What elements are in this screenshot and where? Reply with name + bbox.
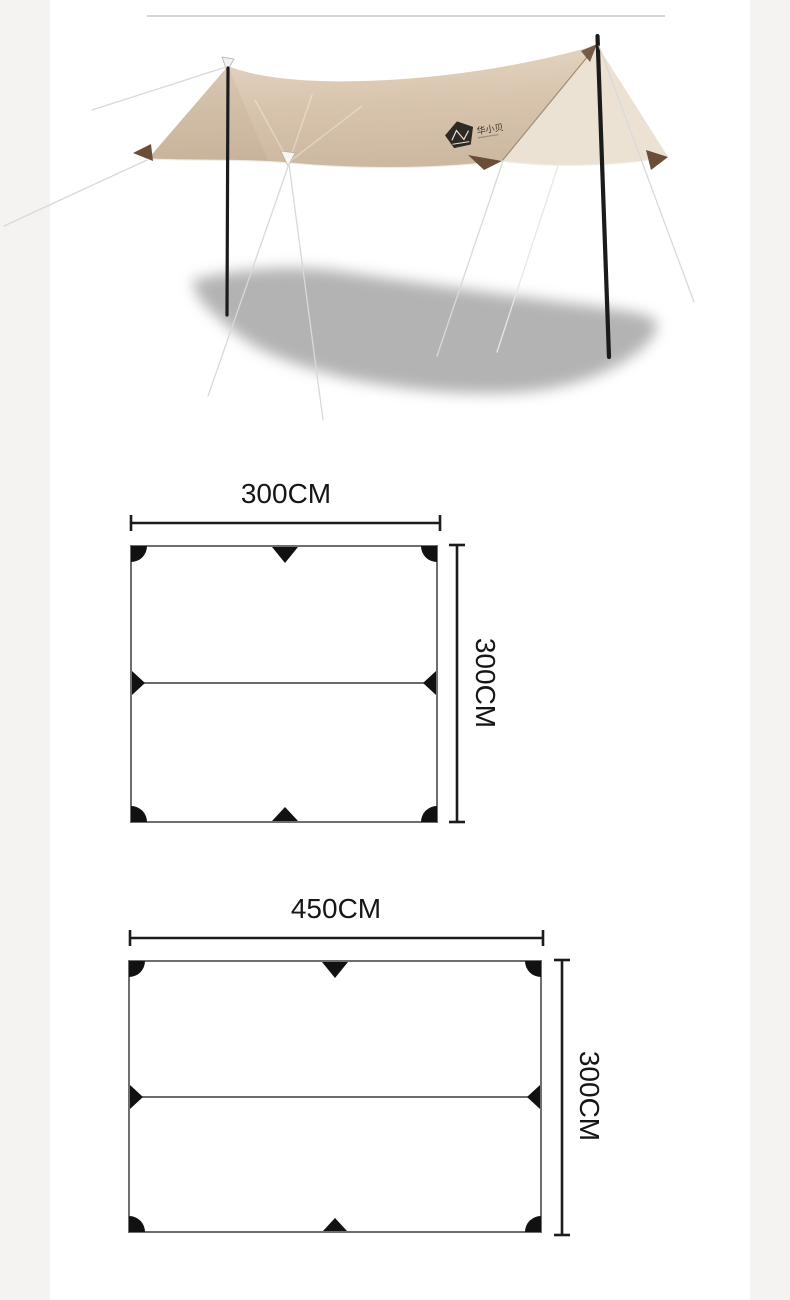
dimension-diagram-300x300: 300CM 300CM (110, 460, 510, 845)
diagram2-width-label: 450CM (291, 893, 381, 924)
diagram1-height-label: 300CM (470, 638, 501, 728)
pole-left (227, 68, 228, 315)
diagram2-height-dimension (554, 960, 570, 1235)
ground-shadow (192, 268, 657, 394)
product-photo-tarp: 华小贝 (0, 0, 790, 450)
dimension-diagram-450x300: 450CM 300CM (110, 880, 630, 1265)
diagram1-width-dimension (131, 515, 440, 531)
diagram1-tarp-outline (131, 546, 437, 822)
diagram2-width-dimension (130, 930, 543, 946)
diagram1-attachment-markers (131, 546, 437, 822)
diagram2-height-label: 300CM (574, 1051, 605, 1141)
diagram1-width-label: 300CM (241, 478, 331, 509)
diagram1-height-dimension (449, 545, 465, 822)
